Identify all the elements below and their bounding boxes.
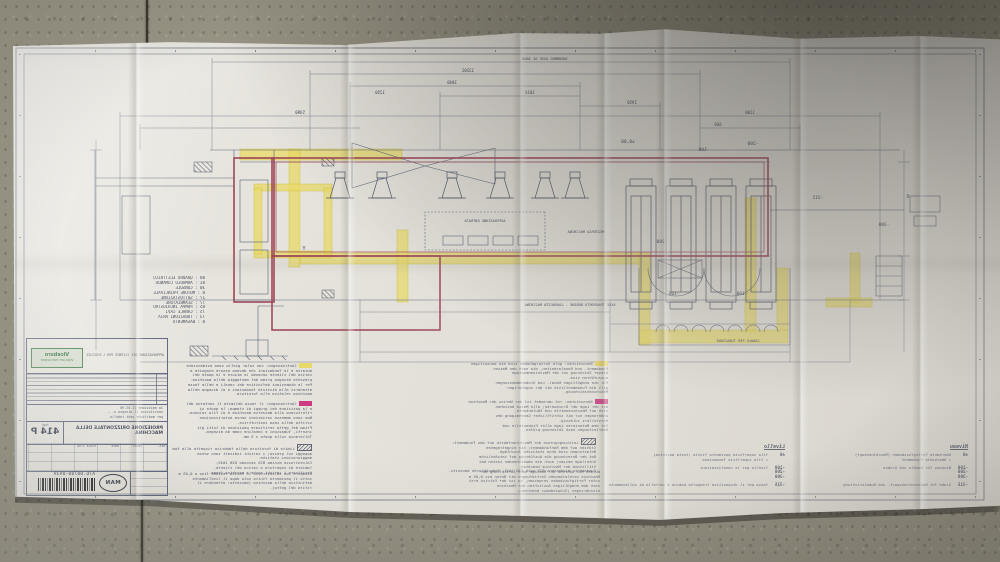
stamp-subline: visto per esecuzione — [41, 359, 74, 363]
drawing-number: A76.00700-0939 — [31, 472, 95, 477]
drawing-label: 660 — [714, 123, 721, 127]
drawing-label: -100 — [737, 293, 748, 297]
title-row: PROIEZIONE ORIZZONTALE DELLA MACCHINA fo… — [27, 421, 167, 445]
mirrored-sheet-content: INGOMBRO ASSE DI 30001320138401014295011… — [0, 0, 1000, 562]
note-line: Maschinenzeichnung. — [362, 390, 608, 395]
level-row: ±0Oberkante Fertigfussboden (Maschinenko… — [793, 453, 968, 463]
drawing-number-block: A76.00700-0939 — [31, 472, 95, 491]
magenta-marker-chip — [595, 399, 608, 404]
note-it-yellow: Contrassegno: con color giallo sono evid… — [185, 363, 312, 397]
drawing-label: MEZZERIA MACCHINA — [568, 230, 605, 234]
title-grid: dis. contr. data scala 1:50 — [27, 443, 167, 472]
grid-label: scala 1:50 — [77, 444, 96, 448]
levels-legend-it: Livello ±0filo superficie pavimento fini… — [595, 444, 785, 491]
drawing-label: 1250 — [375, 91, 385, 95]
legend-list: 80 : QUADRO ELETTRICO81 : ARMADIO COMAND… — [95, 276, 205, 325]
title-bottom-row: MAN A76.00700-0939 — [27, 471, 167, 495]
revision-notes: 1a emissione 21.03.96 sostituisce il dis… — [53, 406, 163, 419]
note-de-plain: Wurden die während der Montage nach Aufs… — [360, 470, 600, 494]
level-row: -315Grube für Bobinentransport- und Hube… — [793, 483, 968, 488]
revision-table — [27, 373, 167, 405]
photo-of-foundation-drawing: INGOMBRO ASSE DI 30001320138401014295011… — [0, 0, 1000, 562]
sheet-number: 414 P — [27, 427, 63, 437]
drawing-label: -200 — [748, 143, 759, 147]
drawing-label: INGOMBRO ASSE DI 3000 — [522, 57, 567, 61]
note-it-plain: Riempire con calcestruzzo le cavità resi… — [172, 472, 312, 491]
magenta-marker-chip — [299, 401, 312, 406]
level-row: -315fossa per il dispositivo trasporto b… — [595, 483, 785, 488]
drawing-label: -315 — [813, 197, 824, 201]
level-row: -100 -200 -300livello per le canalizzazi… — [595, 466, 785, 480]
drawing-label: 1100 — [745, 111, 755, 115]
levels-heading-de: Niveau — [793, 444, 968, 450]
levels-legend-de: Niveau ±0Oberkante Fertigfussboden (Masc… — [793, 444, 968, 491]
drawing-label: CANALE PER TUBAZIONI — [716, 339, 759, 343]
drawing-label: -300 — [879, 224, 890, 228]
note-it-magenta: Contrassegno: il rosso delimita il conto… — [187, 401, 312, 440]
note-line: ritiro del getto). — [172, 486, 312, 491]
level-row: ±0filo superficie pavimento finito (test… — [595, 453, 785, 463]
man-logo-text: MAN — [105, 480, 121, 486]
note-de-magenta: Kennzeichen: rot umrandet ist der Umriss… — [362, 399, 608, 433]
man-logo: MAN — [99, 474, 127, 492]
approval-note: APPROVAZIONE DEL CLIENTE PER L'ESECUZION… — [86, 353, 164, 357]
grid-label: data — [112, 444, 119, 448]
hatch-marker-chip — [581, 438, 596, 445]
note-line: Tolleranza sulle quote ± 5 mm. — [187, 435, 312, 440]
drawing-label: 3840 — [447, 81, 457, 85]
sheet-number-cell: fogl. 414 P — [27, 422, 64, 444]
level-row: -100 -200 -300Niveaus für Kanäle und Gru… — [793, 466, 968, 480]
customer-stamp: Vicebsro visto per esecuzione — [31, 348, 83, 368]
title-block: APPROVAZIONE DEL CLIENTE PER L'ESECUZION… — [26, 338, 168, 496]
drawing-label: 2950 — [627, 101, 637, 105]
drawing-title: PROIEZIONE ORIZZONTALE DELLA MACCHINA — [69, 426, 163, 437]
note-line: Limite di fornitura della fabbrica rispe… — [172, 444, 312, 452]
yellow-marker-chip — [299, 363, 312, 368]
yellow-marker-chip — [595, 361, 608, 366]
note-de-yellow: Kennzeichen: gelb hervorgehoben sind die… — [362, 361, 608, 395]
drawing-label: 1014 — [525, 91, 535, 95]
floor-tile-seam-top — [146, 0, 148, 47]
grid-label: contr. — [131, 444, 142, 448]
grid-label: dis. — [158, 444, 165, 448]
note-line: Leistungsgrenze der Maschinenfabrik auf … — [364, 438, 596, 446]
drawing-label: ASSE TRASPORTO BOBINE - LARGHEZZA MACCHI… — [525, 303, 616, 307]
drawing-label: -100 — [699, 149, 710, 153]
note-it-hatch: Limite di fornitura della fabbrica rispe… — [172, 444, 312, 475]
drawing-label: ASPIRAZIONE ENTRATA — [464, 219, 505, 223]
legend-item: 8 : BASAMENTO — [95, 320, 205, 325]
barcode — [37, 478, 95, 491]
drawing-label: -100 — [669, 293, 680, 297]
drawing-label: X — [906, 195, 909, 199]
drawing-label: ±0,00 — [621, 141, 635, 145]
drawing-label: 13201 — [462, 69, 474, 73]
drawing-label: 5490 — [295, 111, 305, 115]
drawing-sheet: INGOMBRO ASSE DI 30001320138401014295011… — [0, 0, 1000, 562]
note-line: Rohrleitungen nach Zeichnung prüfen. — [362, 428, 608, 433]
revision-note-line: per modifiche vedi tabella — [53, 415, 163, 419]
note-de-hatch: Leistungsgrenze der Maschinenfabrik auf … — [364, 438, 596, 474]
levels-heading-it: Livello — [595, 444, 785, 450]
title-bottom-cells — [130, 471, 167, 495]
drawing-label: -200 — [657, 241, 668, 245]
note-line: einzubringen (Schwindmass beachten). — [360, 489, 600, 494]
hatch-marker-chip — [297, 444, 312, 451]
note-line: macchina relativo alla fornitura. — [185, 392, 312, 397]
drawing-label: Y — [302, 247, 305, 251]
